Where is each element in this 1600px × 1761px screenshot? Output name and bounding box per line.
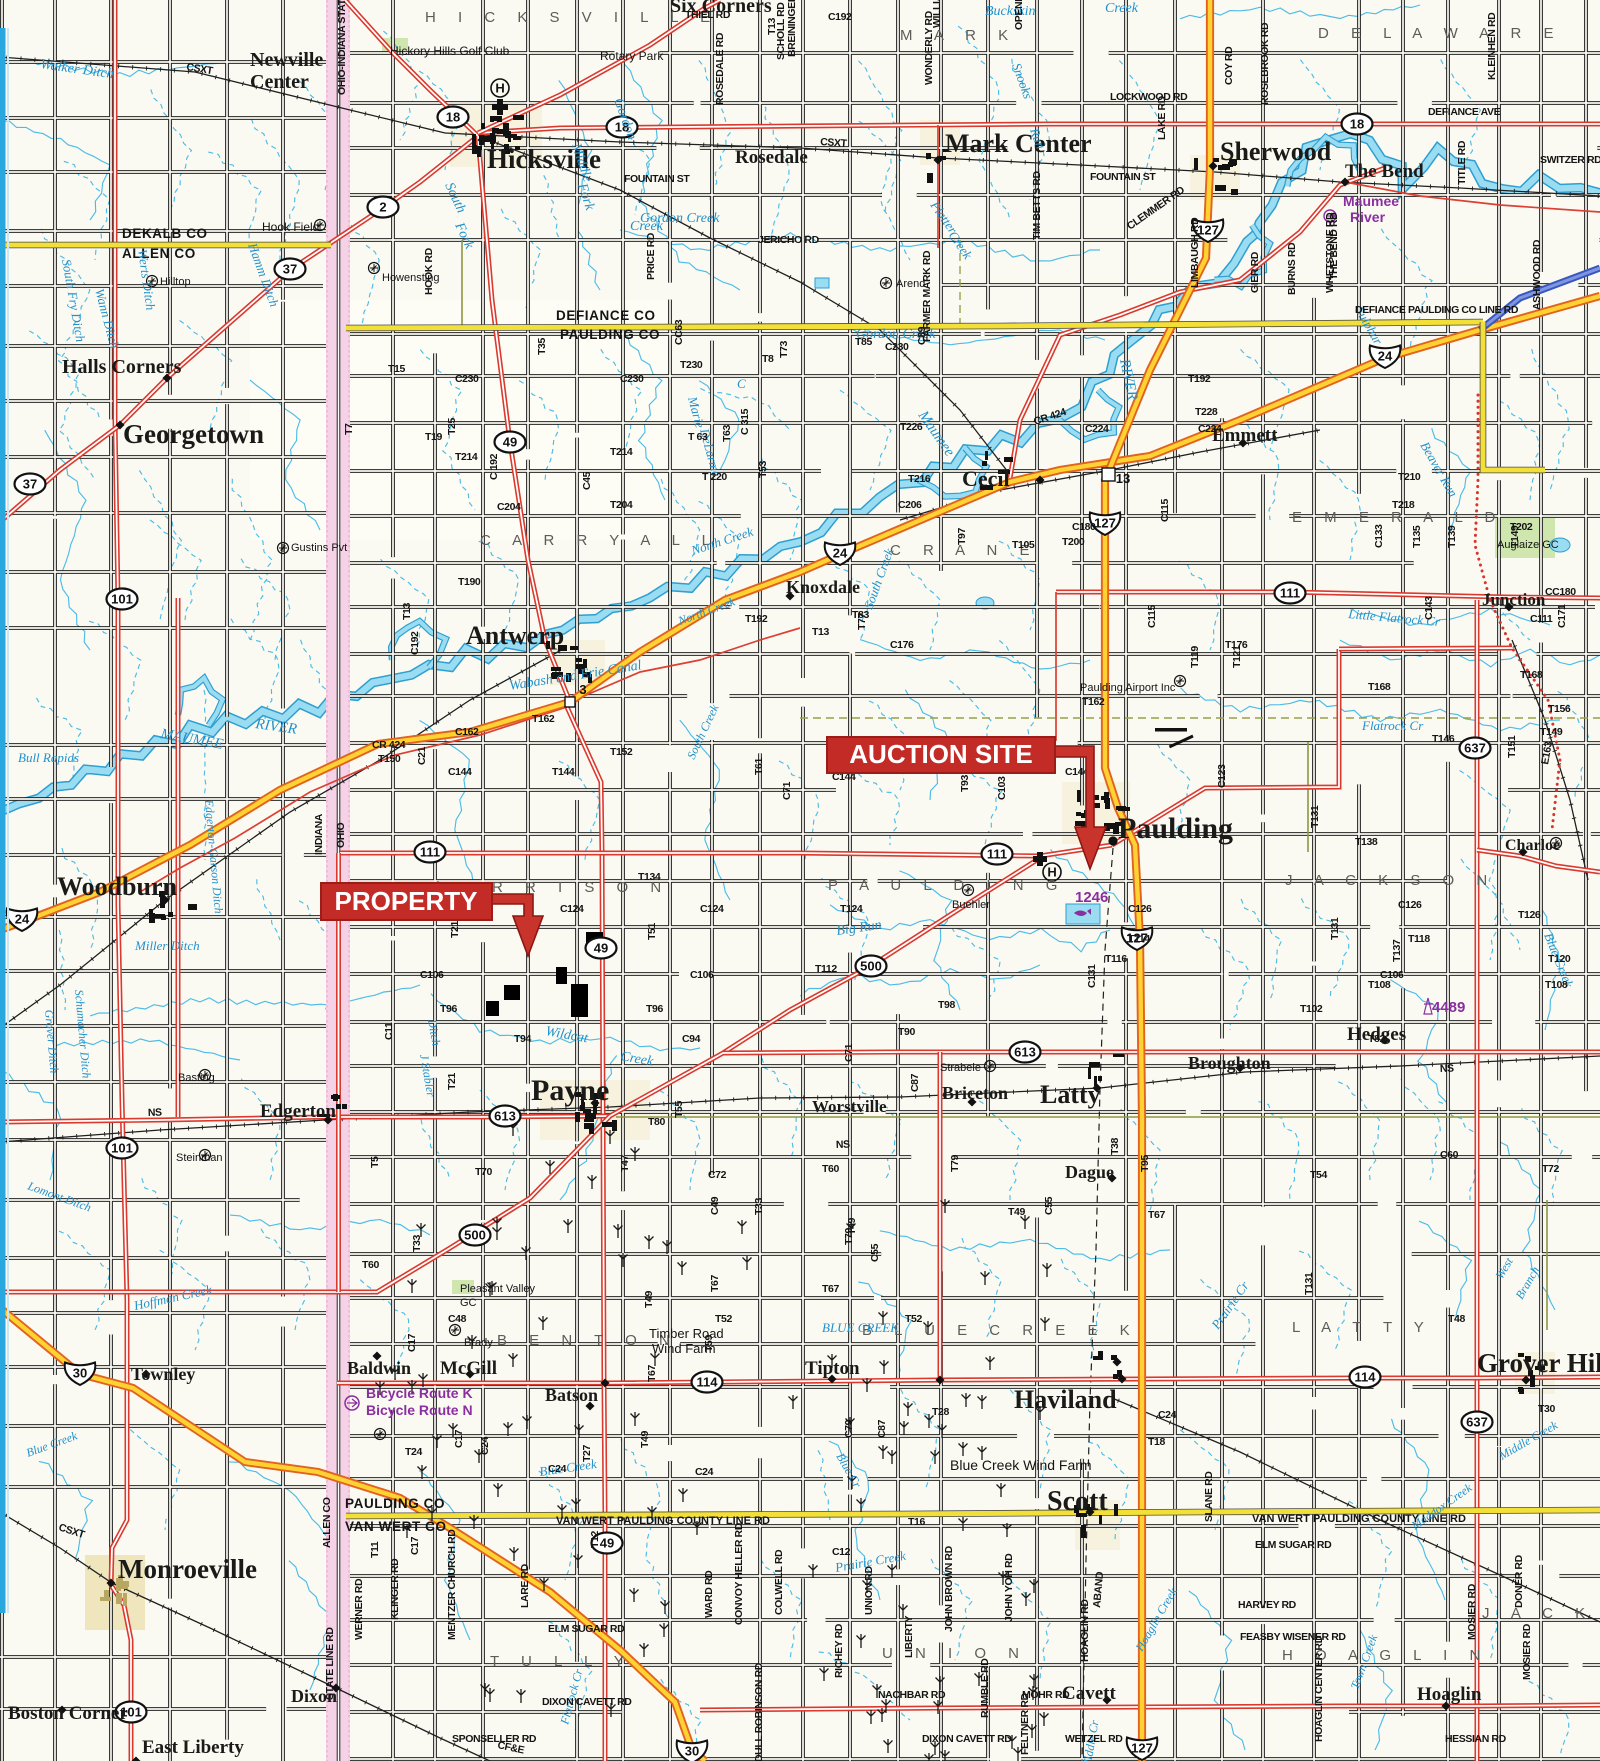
svg-text:Steinman: Steinman xyxy=(176,1152,222,1164)
svg-text:T120: T120 xyxy=(1548,953,1571,965)
svg-text:T137: T137 xyxy=(1391,939,1403,962)
svg-text:T30: T30 xyxy=(1538,1403,1555,1415)
svg-text:C133: C133 xyxy=(1373,524,1385,548)
svg-text:C12: C12 xyxy=(832,1546,851,1558)
svg-text:J A C K S O N: J A C K S O N xyxy=(1482,1605,1600,1622)
svg-text:637: 637 xyxy=(1464,741,1486,756)
svg-text:Blue Creek Wind Farm: Blue Creek Wind Farm xyxy=(950,1457,1092,1473)
svg-text:24: 24 xyxy=(15,912,30,927)
svg-text:T96: T96 xyxy=(440,1003,457,1015)
svg-text:111: 111 xyxy=(1280,586,1300,601)
svg-text:L A T T Y: L A T T Y xyxy=(1292,1319,1433,1336)
svg-text:C230: C230 xyxy=(455,373,479,385)
svg-text:FOUNTAIN ST: FOUNTAIN ST xyxy=(624,173,690,185)
svg-text:30: 30 xyxy=(73,1366,87,1381)
svg-text:T162: T162 xyxy=(1082,696,1105,708)
svg-text:500: 500 xyxy=(464,1228,486,1243)
svg-text:T79: T79 xyxy=(949,1155,961,1172)
svg-text:Gustins Pvt: Gustins Pvt xyxy=(291,542,347,554)
svg-text:C204: C204 xyxy=(497,501,521,513)
svg-text:CSXT: CSXT xyxy=(820,136,848,150)
svg-text:13: 13 xyxy=(1116,471,1130,486)
svg-text:P A U L D I N G: P A U L D I N G xyxy=(828,877,1066,894)
svg-text:Monroeville: Monroeville xyxy=(118,1554,257,1584)
svg-text:Basting: Basting xyxy=(178,1072,215,1084)
svg-text:T131: T131 xyxy=(1329,917,1341,940)
svg-text:Brady: Brady xyxy=(464,1337,493,1349)
svg-text:T192: T192 xyxy=(1188,373,1211,385)
svg-text:C106: C106 xyxy=(690,969,714,981)
svg-text:T138: T138 xyxy=(1355,836,1378,848)
svg-text:18: 18 xyxy=(1350,117,1364,132)
svg-text:C87: C87 xyxy=(909,1073,921,1092)
svg-text:C224: C224 xyxy=(1198,423,1222,435)
svg-text:Gordon Creek: Gordon Creek xyxy=(640,211,720,226)
svg-text:T15: T15 xyxy=(388,363,405,375)
svg-text:3: 3 xyxy=(579,682,586,697)
svg-text:T146: T146 xyxy=(1432,733,1455,745)
svg-text:Hook Field: Hook Field xyxy=(262,220,319,234)
svg-text:T210: T210 xyxy=(1398,471,1421,483)
svg-text:HOAGLIN CENTER RD: HOAGLIN CENTER RD xyxy=(1313,1635,1325,1742)
svg-text:T63: T63 xyxy=(721,425,733,442)
svg-text:Maumee: Maumee xyxy=(1343,193,1399,209)
svg-text:Buehler: Buehler xyxy=(952,899,990,911)
svg-text:C49: C49 xyxy=(709,1196,721,1215)
svg-text:BREININGER RD: BREININGER RD xyxy=(786,0,798,57)
svg-text:500: 500 xyxy=(860,959,882,974)
svg-text:SLANE RD: SLANE RD xyxy=(1203,1471,1215,1522)
svg-text:T168: T168 xyxy=(1368,681,1391,693)
svg-text:ELM SUGAR RD: ELM SUGAR RD xyxy=(1255,1539,1332,1551)
svg-text:C24: C24 xyxy=(695,1466,714,1478)
svg-text:SWITZER RD: SWITZER RD xyxy=(1540,154,1600,166)
svg-text:T126: T126 xyxy=(1518,909,1541,921)
svg-text:T85: T85 xyxy=(855,336,872,348)
svg-text:T108: T108 xyxy=(1545,979,1568,991)
svg-text:T13: T13 xyxy=(812,626,829,638)
svg-text:KLEINHEN RD: KLEINHEN RD xyxy=(1486,12,1498,80)
svg-text:JERICHO RD: JERICHO RD xyxy=(758,234,820,246)
svg-text:Broughton: Broughton xyxy=(1188,1053,1271,1073)
svg-text:CC180: CC180 xyxy=(1545,586,1576,598)
svg-text:ROSEBROOK RD: ROSEBROOK RD xyxy=(1259,22,1271,105)
svg-text:M A R K: M A R K xyxy=(900,27,1017,44)
svg-text:24: 24 xyxy=(833,546,848,561)
svg-text:C206: C206 xyxy=(898,499,922,511)
svg-text:T204: T204 xyxy=(610,499,633,511)
svg-text:C126: C126 xyxy=(1128,903,1152,915)
svg-text:T121: T121 xyxy=(1231,645,1243,668)
svg-text:T108: T108 xyxy=(1368,979,1391,991)
svg-text:T98: T98 xyxy=(938,999,955,1011)
svg-text:T16: T16 xyxy=(908,1516,925,1528)
svg-text:PAULDING CO: PAULDING CO xyxy=(560,327,660,342)
svg-text:ROSEDALE RD: ROSEDALE RD xyxy=(714,32,726,105)
svg-text:C55: C55 xyxy=(869,1243,881,1262)
svg-text:T114: T114 xyxy=(1128,933,1150,945)
svg-text:127: 127 xyxy=(1094,516,1116,531)
svg-text:OHIO-INDIANA STATE LINE RD: OHIO-INDIANA STATE LINE RD xyxy=(336,0,348,95)
svg-text:T124: T124 xyxy=(840,903,863,915)
svg-text:T112: T112 xyxy=(815,963,837,975)
svg-text:T200: T200 xyxy=(1062,536,1085,548)
svg-text:T131: T131 xyxy=(1309,805,1321,828)
svg-text:C24: C24 xyxy=(548,1463,567,1475)
svg-text:Woodburn: Woodburn xyxy=(57,872,177,901)
svg-text:C176: C176 xyxy=(890,639,914,651)
svg-text:C115: C115 xyxy=(1159,499,1171,522)
svg-text:Haviland: Haviland xyxy=(1014,1385,1117,1414)
svg-text:T25: T25 xyxy=(446,418,458,435)
svg-text:T226: T226 xyxy=(900,421,923,433)
svg-text:T54: T54 xyxy=(1310,1169,1327,1181)
svg-text:T51: T51 xyxy=(646,923,658,940)
svg-text:MOSIER RD: MOSIER RD xyxy=(1521,1623,1533,1680)
svg-text:Buckskin: Buckskin xyxy=(985,4,1036,19)
svg-text:VAN WERT CO: VAN WERT CO xyxy=(345,1519,447,1534)
svg-text:The Bend: The Bend xyxy=(1345,161,1424,182)
svg-text:C230: C230 xyxy=(885,341,909,353)
svg-text:AUCTION SITE: AUCTION SITE xyxy=(849,739,1032,769)
svg-text:T49: T49 xyxy=(643,1291,655,1308)
svg-text:C171: C171 xyxy=(1556,604,1568,628)
svg-text:T13: T13 xyxy=(766,18,778,35)
svg-text:T33: T33 xyxy=(753,1198,765,1215)
svg-text:Rosedale: Rosedale xyxy=(735,147,808,168)
svg-text:T151: T151 xyxy=(1506,735,1518,758)
svg-text:McGill: McGill xyxy=(440,1358,497,1379)
svg-text:T214: T214 xyxy=(455,451,478,463)
svg-text:T21: T21 xyxy=(449,921,461,938)
svg-text:T47: T47 xyxy=(619,1155,631,1172)
svg-text:MENTZER CHURCH RD: MENTZER CHURCH RD xyxy=(446,1529,458,1640)
svg-text:STATE LINE RD: STATE LINE RD xyxy=(324,1627,336,1700)
svg-text:T135: T135 xyxy=(1411,525,1423,548)
svg-text:JOHN BROWN RD: JOHN BROWN RD xyxy=(943,1545,955,1632)
svg-text:T80: T80 xyxy=(648,1116,665,1128)
svg-text:NS: NS xyxy=(1440,1063,1455,1075)
svg-text:T152: T152 xyxy=(610,746,633,758)
svg-text:T216: T216 xyxy=(908,473,931,485)
svg-text:T13: T13 xyxy=(401,603,413,620)
svg-text:C143: C143 xyxy=(1423,596,1435,620)
svg-text:C 315: C 315 xyxy=(739,408,751,435)
svg-text:T73: T73 xyxy=(778,341,790,358)
svg-text:111: 111 xyxy=(420,845,440,860)
svg-text:BLUE CREEK: BLUE CREEK xyxy=(822,1320,900,1335)
svg-text:ELM SUGAR RD: ELM SUGAR RD xyxy=(548,1623,625,1635)
svg-text:C111: C111 xyxy=(1530,613,1553,625)
svg-text:T79: T79 xyxy=(843,1228,855,1245)
svg-text:INDIANA: INDIANA xyxy=(313,813,325,855)
svg-text:Junction: Junction xyxy=(1482,590,1546,609)
svg-text:37: 37 xyxy=(23,477,37,492)
svg-text:T52: T52 xyxy=(715,1313,732,1325)
svg-text:WERNER RD: WERNER RD xyxy=(353,1578,365,1640)
svg-text:C60: C60 xyxy=(1440,1149,1459,1161)
svg-text:Cecil: Cecil xyxy=(962,466,1010,491)
svg-text:T24: T24 xyxy=(405,1446,422,1458)
svg-text:C17: C17 xyxy=(406,1333,418,1352)
svg-text:CC63: CC63 xyxy=(673,319,685,345)
svg-text:T 63: T 63 xyxy=(688,431,708,443)
svg-text:WONDERLY RD: WONDERLY RD xyxy=(923,10,935,85)
svg-text:T52: T52 xyxy=(905,1313,922,1325)
svg-text:T60: T60 xyxy=(362,1259,379,1271)
svg-text:C: C xyxy=(737,376,746,391)
svg-text:T48: T48 xyxy=(1448,1313,1465,1325)
svg-text:East Liberty: East Liberty xyxy=(142,1737,244,1758)
svg-text:T67: T67 xyxy=(1148,1209,1165,1221)
svg-text:Miller Ditch: Miller Ditch xyxy=(134,938,200,953)
svg-text:1246: 1246 xyxy=(1075,889,1108,906)
svg-text:E M E R A L D: E M E R A L D xyxy=(1292,509,1504,526)
svg-text:18: 18 xyxy=(446,110,460,125)
svg-text:T7: T7 xyxy=(343,423,355,435)
svg-text:111: 111 xyxy=(987,847,1007,862)
svg-text:C124: C124 xyxy=(700,903,724,915)
svg-text:T214: T214 xyxy=(610,446,633,458)
svg-text:C162: C162 xyxy=(455,726,479,738)
svg-text:C131: C131 xyxy=(1086,964,1098,988)
svg-text:Strabele: Strabele xyxy=(940,1062,981,1074)
svg-text:CONVOY HELLER RD: CONVOY HELLER RD xyxy=(733,1522,745,1625)
svg-text:T35: T35 xyxy=(536,338,548,355)
svg-text:T21: T21 xyxy=(446,1073,458,1090)
svg-text:C224: C224 xyxy=(1085,423,1109,435)
svg-text:T149: T149 xyxy=(1540,726,1563,738)
svg-text:T49: T49 xyxy=(639,1431,651,1448)
svg-text:PAULDING CO: PAULDING CO xyxy=(345,1496,445,1511)
svg-text:C48: C48 xyxy=(448,1313,467,1325)
svg-text:T67: T67 xyxy=(646,1365,658,1382)
svg-text:DONER RD: DONER RD xyxy=(1513,1554,1525,1608)
svg-text:613: 613 xyxy=(1014,1045,1036,1060)
svg-text:C72: C72 xyxy=(708,1169,727,1181)
svg-text:Edgerton: Edgerton xyxy=(260,1101,336,1122)
svg-text:C71: C71 xyxy=(781,781,793,800)
svg-text:C126: C126 xyxy=(1398,899,1422,911)
svg-text:ASHWOOD RD: ASHWOOD RD xyxy=(1531,239,1543,310)
svg-text:WETZEL RD: WETZEL RD xyxy=(1065,1733,1123,1745)
svg-text:T82: T82 xyxy=(1368,1033,1385,1045)
svg-text:KLINGER RD: KLINGER RD xyxy=(389,1558,401,1620)
svg-text:Briceton: Briceton xyxy=(942,1083,1008,1103)
svg-text:RICHEY RD: RICHEY RD xyxy=(833,1623,845,1678)
svg-text:C79: C79 xyxy=(843,1419,855,1438)
svg-text:GIER RD: GIER RD xyxy=(1249,251,1261,293)
svg-text:T90: T90 xyxy=(898,1026,915,1038)
svg-text:C94: C94 xyxy=(682,1033,701,1045)
svg-text:SPONSELLER RD: SPONSELLER RD xyxy=(452,1733,537,1745)
svg-text:ALLEN CO: ALLEN CO xyxy=(122,246,196,261)
svg-text:C55: C55 xyxy=(1043,1196,1055,1215)
svg-text:PRICE RD: PRICE RD xyxy=(645,232,657,280)
svg-text:T192: T192 xyxy=(745,613,768,625)
svg-text:C124: C124 xyxy=(560,903,584,915)
svg-text:T19: T19 xyxy=(425,431,442,443)
svg-text:T144: T144 xyxy=(552,766,575,778)
svg-text:Charloe: Charloe xyxy=(1505,837,1560,854)
svg-text:Hoaglin: Hoaglin xyxy=(1417,1684,1482,1705)
svg-text:C11: C11 xyxy=(383,1022,395,1040)
svg-text:HESSIAN RD: HESSIAN RD xyxy=(1445,1733,1507,1745)
svg-text:T97: T97 xyxy=(956,528,968,545)
svg-text:C24: C24 xyxy=(1158,1409,1177,1421)
svg-text:LAKE RD: LAKE RD xyxy=(1156,95,1168,140)
svg-text:T11: T11 xyxy=(369,1541,381,1558)
svg-text:Bicycle Route N: Bicycle Route N xyxy=(366,1402,473,1418)
svg-text:T67: T67 xyxy=(709,1275,721,1292)
svg-text:Worstville: Worstville xyxy=(812,1097,887,1116)
svg-text:Knoxdale: Knoxdale xyxy=(786,577,860,597)
svg-text:Center: Center xyxy=(250,71,309,93)
svg-text:OPENLANDER: OPENLANDER xyxy=(1013,0,1025,30)
svg-text:Halls Corners: Halls Corners xyxy=(62,356,182,378)
svg-text:FELTNER RD: FELTNER RD xyxy=(1019,1692,1031,1755)
svg-text:C24: C24 xyxy=(479,1436,491,1455)
svg-text:C17: C17 xyxy=(453,1429,465,1448)
svg-text:HOOK RD: HOOK RD xyxy=(423,247,435,295)
svg-text:T95: T95 xyxy=(1139,1155,1151,1172)
svg-text:DEFIANCE PAULDING CO LINE RD: DEFIANCE PAULDING CO LINE RD xyxy=(1355,304,1519,316)
svg-text:Emmett: Emmett xyxy=(1212,425,1278,446)
svg-text:COY RD: COY RD xyxy=(1223,46,1235,85)
svg-text:T134: T134 xyxy=(638,871,661,883)
svg-text:T27: T27 xyxy=(581,1445,593,1462)
svg-text:C21: C21 xyxy=(416,746,428,765)
svg-text:T230: T230 xyxy=(680,359,703,371)
svg-text:Latty: Latty xyxy=(1040,1080,1101,1109)
svg-text:T162: T162 xyxy=(532,713,555,725)
svg-text:613: 613 xyxy=(494,1109,516,1124)
svg-text:B L U E C R E E K: B L U E C R E E K xyxy=(862,1322,1139,1339)
svg-text:DEKALB CO: DEKALB CO xyxy=(122,226,208,241)
svg-text:127: 127 xyxy=(1131,1741,1153,1756)
svg-text:C230: C230 xyxy=(620,373,644,385)
svg-text:OHIO: OHIO xyxy=(335,823,347,848)
svg-text:DIXON CAVETT RD: DIXON CAVETT RD xyxy=(542,1696,632,1708)
svg-text:T67: T67 xyxy=(822,1283,839,1295)
svg-text:4489: 4489 xyxy=(1432,999,1465,1016)
svg-text:Antwerp: Antwerp xyxy=(466,621,564,650)
svg-text:T59: T59 xyxy=(703,1335,715,1352)
svg-text:24: 24 xyxy=(1378,349,1393,364)
svg-text:T105: T105 xyxy=(1012,539,1035,551)
svg-text:WARD RD: WARD RD xyxy=(703,1570,715,1618)
svg-text:River: River xyxy=(1350,209,1386,225)
svg-text:T102: T102 xyxy=(1300,1003,1323,1015)
svg-text:101: 101 xyxy=(111,1141,133,1156)
svg-text:T116: T116 xyxy=(1105,953,1127,965)
svg-text:Newville: Newville xyxy=(250,49,323,71)
svg-text:Paulding Airport Inc: Paulding Airport Inc xyxy=(1080,682,1176,694)
svg-text:Baldwin: Baldwin xyxy=(347,1358,411,1378)
svg-text:C 192: C 192 xyxy=(488,453,500,480)
svg-text:RUMBLE RD: RUMBLE RD xyxy=(979,1658,991,1718)
svg-text:ALLEN CO: ALLEN CO xyxy=(321,1497,333,1548)
svg-text:T28: T28 xyxy=(932,1406,949,1418)
svg-text:T156: T156 xyxy=(1548,703,1571,715)
svg-text:C106: C106 xyxy=(420,969,444,981)
svg-text:T202: T202 xyxy=(1510,521,1533,533)
svg-text:GC: GC xyxy=(460,1297,477,1309)
svg-text:THIEL RD: THIEL RD xyxy=(685,9,731,21)
svg-text:Hilltop: Hilltop xyxy=(160,276,191,288)
svg-text:Creek: Creek xyxy=(1105,1,1139,16)
svg-text:HARVEY RD: HARVEY RD xyxy=(1238,1599,1297,1611)
svg-text:Grover Hill: Grover Hill xyxy=(1477,1348,1600,1378)
svg-text:C89: C89 xyxy=(916,326,928,345)
svg-text:101: 101 xyxy=(111,592,133,607)
svg-text:114: 114 xyxy=(1355,1370,1377,1385)
svg-text:T33: T33 xyxy=(411,1235,423,1252)
svg-text:NACHBAR RD: NACHBAR RD xyxy=(878,1689,946,1701)
svg-text:FOUNTAIN ST: FOUNTAIN ST xyxy=(1090,171,1156,183)
svg-text:T168: T168 xyxy=(1520,669,1543,681)
svg-text:Georgetown: Georgetown xyxy=(123,419,264,449)
svg-text:T218: T218 xyxy=(1392,499,1415,511)
svg-text:LOCKWOOD RD: LOCKWOOD RD xyxy=(1110,91,1188,103)
svg-text:Rotary Park: Rotary Park xyxy=(600,49,664,63)
svg-text:Townley: Townley xyxy=(131,1364,195,1384)
svg-text:C180: C180 xyxy=(1072,521,1096,533)
svg-text:LARE RD: LARE RD xyxy=(519,1563,531,1608)
svg-text:49: 49 xyxy=(600,1536,614,1551)
svg-text:LIMBAUGH RD: LIMBAUGH RD xyxy=(1189,217,1201,288)
svg-text:49: 49 xyxy=(594,941,608,956)
svg-text:Flatrock Cr: Flatrock Cr xyxy=(1361,718,1424,733)
svg-text:Scott: Scott xyxy=(1047,1486,1108,1517)
svg-text:WHETSTONE RD: WHETSTONE RD xyxy=(1324,212,1336,293)
svg-text:T8: T8 xyxy=(762,353,774,365)
svg-text:C45: C45 xyxy=(581,471,593,490)
svg-text:637: 637 xyxy=(1466,1415,1488,1430)
svg-text:C17: C17 xyxy=(409,1536,421,1555)
svg-text:NS: NS xyxy=(836,1139,851,1151)
svg-text:MOSIER RD: MOSIER RD xyxy=(1466,1583,1478,1640)
svg-text:T55: T55 xyxy=(673,1101,685,1118)
svg-text:T U L L Y: T U L L Y xyxy=(490,1653,633,1670)
svg-text:T96: T96 xyxy=(646,1003,663,1015)
svg-text:Hickory Hills Golf Club: Hickory Hills Golf Club xyxy=(390,44,510,58)
svg-text:DULL ROBINSON RD: DULL ROBINSON RD xyxy=(753,1662,765,1761)
svg-text:T118: T118 xyxy=(1408,933,1430,945)
svg-text:DEFIANCE AVE: DEFIANCE AVE xyxy=(1428,106,1501,118)
svg-text:Paulding: Paulding xyxy=(1118,812,1233,845)
svg-text:C115: C115 xyxy=(1146,605,1158,628)
svg-text:Payne: Payne xyxy=(531,1074,609,1107)
svg-text:T131: T131 xyxy=(1303,1272,1315,1295)
svg-text:T83: T83 xyxy=(852,609,869,621)
svg-text:H: H xyxy=(495,81,504,96)
svg-text:C192: C192 xyxy=(409,631,421,655)
svg-text:114: 114 xyxy=(697,1375,719,1390)
svg-text:C123: C123 xyxy=(1216,764,1228,788)
svg-text:T139: T139 xyxy=(1446,525,1458,548)
svg-text:CR 424: CR 424 xyxy=(372,739,406,751)
svg-text:TITLE RD: TITLE RD xyxy=(1456,140,1468,185)
svg-text:DEFIANCE CO: DEFIANCE CO xyxy=(556,308,656,323)
svg-text:Batson: Batson xyxy=(545,1385,598,1405)
svg-text:C A R R Y A L L: C A R R Y A L L xyxy=(480,532,719,549)
svg-text:Bicycle Route K: Bicycle Route K xyxy=(366,1385,473,1401)
svg-text:Dague: Dague xyxy=(1065,1162,1114,1182)
svg-text:TIM BETTS RD: TIM BETTS RD xyxy=(1031,170,1043,240)
svg-text:C192: C192 xyxy=(828,11,852,23)
svg-text:T53: T53 xyxy=(757,461,769,478)
